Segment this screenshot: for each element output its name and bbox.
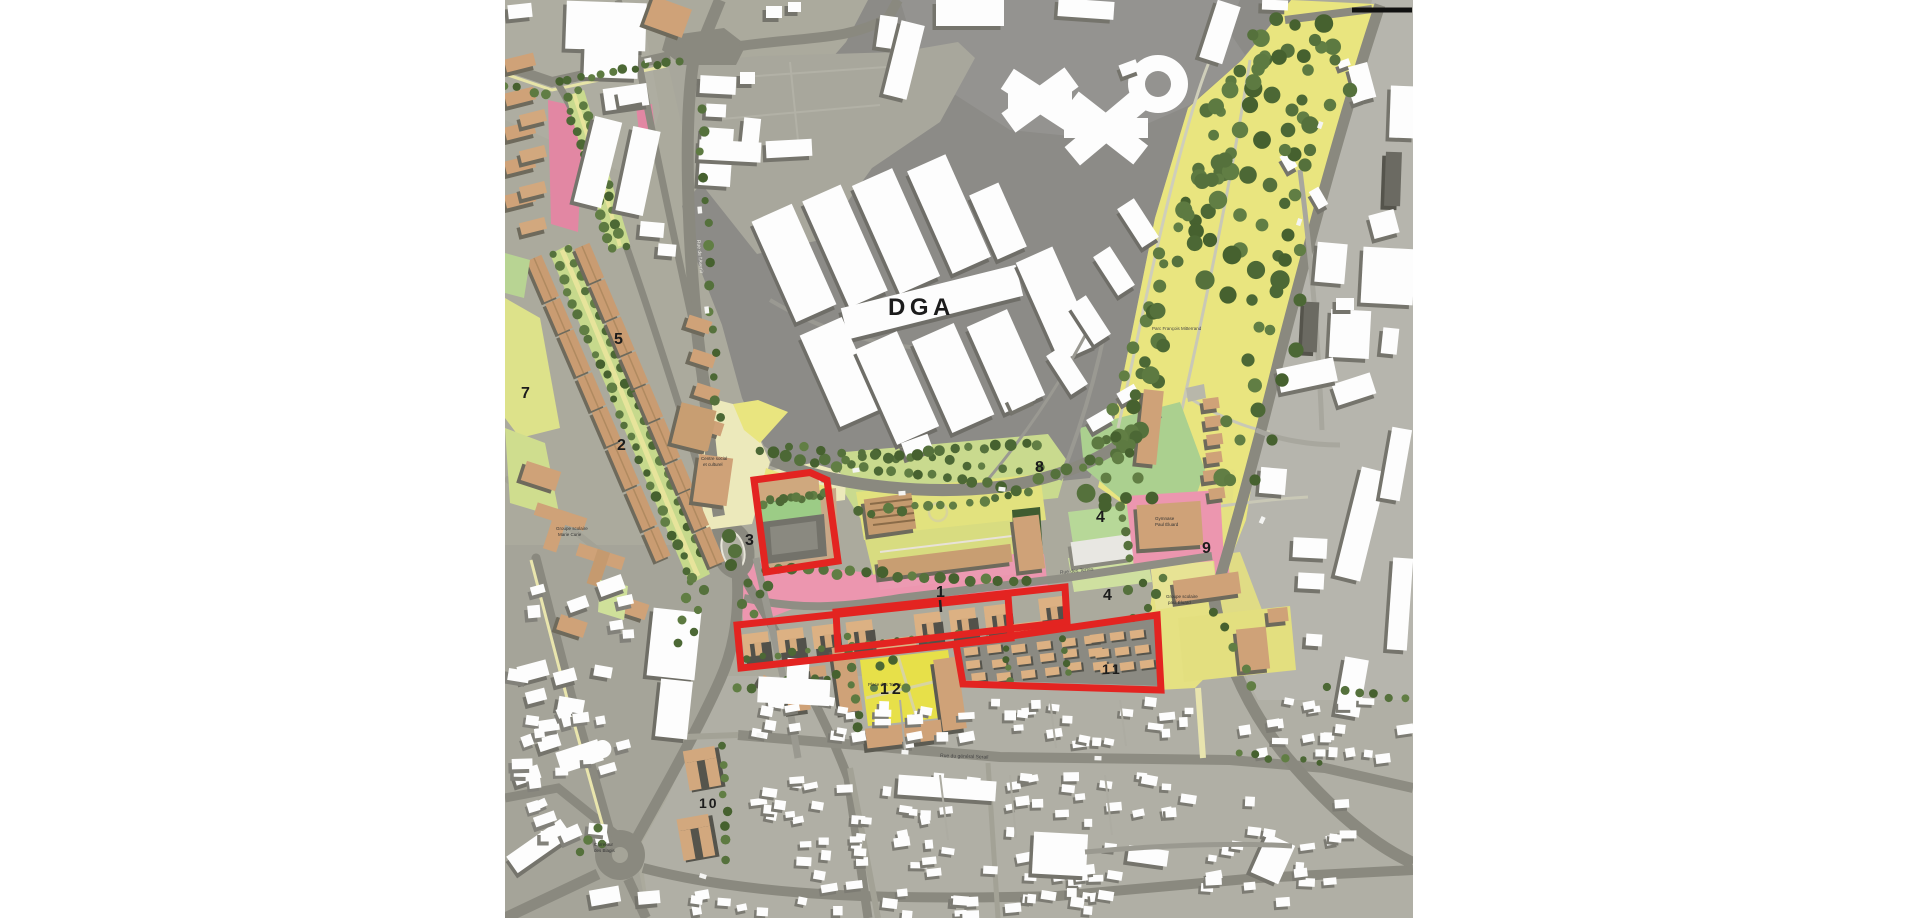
svg-text:et culturel: et culturel — [703, 462, 723, 467]
svg-text:Gymnase: Gymnase — [1155, 516, 1175, 521]
svg-text:4: 4 — [1096, 509, 1105, 526]
svg-text:7: 7 — [521, 385, 530, 402]
svg-text:Paul Éluard: Paul Éluard — [1155, 521, 1179, 527]
svg-text:2: 2 — [617, 437, 626, 454]
svg-text:Groupe scolaire: Groupe scolaire — [556, 526, 588, 531]
svg-text:Groupe scolaire: Groupe scolaire — [1166, 594, 1198, 599]
svg-text:Parc François Mitterrand: Parc François Mitterrand — [1152, 326, 1202, 331]
svg-text:Marie Curie: Marie Curie — [558, 532, 582, 537]
svg-text:paul Éluard: paul Éluard — [1168, 599, 1191, 605]
svg-text:11: 11 — [1102, 661, 1123, 677]
svg-text:DGA: DGA — [888, 294, 955, 321]
svg-text:10: 10 — [699, 795, 719, 811]
svg-text:4: 4 — [1103, 587, 1112, 604]
svg-text:Place des Terres: Place des Terres — [868, 682, 902, 687]
svg-text:Carrefour: Carrefour — [594, 842, 614, 847]
svg-text:des Blagis: des Blagis — [594, 848, 616, 853]
svg-text:3: 3 — [745, 532, 754, 549]
svg-text:8: 8 — [1035, 459, 1044, 476]
svg-text:Centre social: Centre social — [701, 456, 727, 461]
svg-text:1: 1 — [936, 584, 945, 601]
svg-text:5: 5 — [614, 331, 623, 348]
svg-text:9: 9 — [1202, 540, 1211, 557]
